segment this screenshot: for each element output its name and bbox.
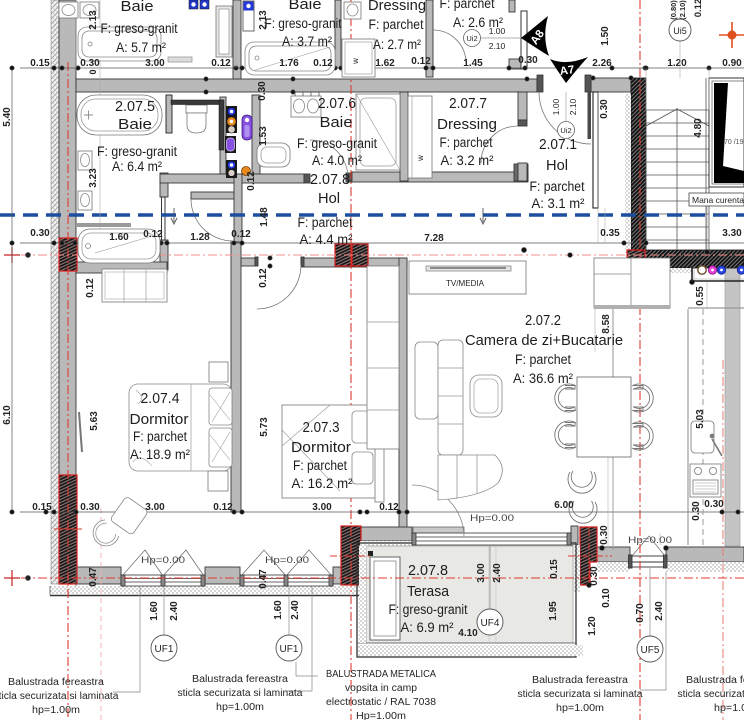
svg-text:2.07.6: 2.07.6 bbox=[318, 96, 356, 112]
svg-text:A: 4.4 m²: A: 4.4 m² bbox=[300, 232, 353, 247]
svg-text:0.55: 0.55 bbox=[695, 286, 706, 306]
svg-text:hp=1.00m: hp=1.00m bbox=[714, 703, 744, 714]
svg-text:F: parchet: F: parchet bbox=[440, 135, 493, 150]
svg-text:F: parchet: F: parchet bbox=[530, 179, 585, 194]
svg-text:1.00: 1.00 bbox=[551, 98, 561, 115]
svg-text:0.10: 0.10 bbox=[601, 588, 612, 608]
svg-text:1.60: 1.60 bbox=[109, 232, 129, 243]
svg-text:Dormitor: Dormitor bbox=[291, 440, 351, 456]
svg-text:2.07.2: 2.07.2 bbox=[525, 313, 561, 329]
svg-text:0.30: 0.30 bbox=[691, 501, 702, 521]
svg-text:F: greso-granit: F: greso-granit bbox=[297, 136, 377, 151]
svg-text:2.07.5: 2.07.5 bbox=[115, 99, 155, 115]
svg-text:2.07.8: 2.07.8 bbox=[310, 172, 350, 188]
svg-text:UF5: UF5 bbox=[641, 645, 660, 656]
svg-text:1.60: 1.60 bbox=[149, 601, 160, 621]
svg-text:2.10: 2.10 bbox=[568, 98, 578, 115]
svg-text:Baie: Baie bbox=[118, 117, 152, 133]
svg-text:sticla securizata si laminata: sticla securizata si laminata bbox=[0, 691, 119, 702]
svg-text:A: 3.1 m²: A: 3.1 m² bbox=[532, 196, 585, 211]
svg-text:0.12: 0.12 bbox=[143, 229, 163, 240]
svg-text:A: 4.0 m²: A: 4.0 m² bbox=[312, 153, 362, 168]
svg-text:Ui2: Ui2 bbox=[560, 126, 571, 135]
svg-text:F: parchet: F: parchet bbox=[369, 17, 424, 32]
svg-text:Hp=0.00: Hp=0.00 bbox=[265, 555, 309, 566]
svg-text:Baie: Baie bbox=[121, 0, 154, 15]
svg-text:w: w bbox=[351, 58, 360, 65]
svg-text:0.12: 0.12 bbox=[693, 0, 704, 17]
svg-text:0.30: 0.30 bbox=[704, 499, 724, 510]
svg-text:A: 2.6 m²: A: 2.6 m² bbox=[453, 15, 503, 30]
svg-text:sticla securizata si laminata: sticla securizata si laminata bbox=[178, 688, 303, 699]
svg-text:UF4: UF4 bbox=[481, 618, 500, 629]
svg-text:A: 16.2 m²: A: 16.2 m² bbox=[292, 476, 353, 491]
svg-text:3.00: 3.00 bbox=[312, 502, 332, 513]
svg-text:Ui5: Ui5 bbox=[673, 26, 687, 36]
svg-text:5.63: 5.63 bbox=[89, 411, 100, 431]
svg-text:A: 6.9 m²: A: 6.9 m² bbox=[401, 620, 454, 635]
svg-text:1.48: 1.48 bbox=[259, 207, 270, 227]
svg-text:3.00: 3.00 bbox=[476, 563, 487, 583]
svg-text:Dormitor: Dormitor bbox=[130, 412, 189, 428]
svg-text:0.35: 0.35 bbox=[600, 228, 620, 239]
svg-text:A7: A7 bbox=[559, 64, 575, 78]
svg-text:2.07.4: 2.07.4 bbox=[141, 391, 180, 407]
svg-text:0.47: 0.47 bbox=[88, 567, 99, 587]
svg-text:0.12: 0.12 bbox=[211, 58, 231, 69]
svg-text:UF1: UF1 bbox=[155, 644, 174, 655]
svg-text:6.10: 6.10 bbox=[2, 405, 13, 425]
svg-text:0.70: 0.70 bbox=[635, 603, 646, 623]
svg-text:2.07.8: 2.07.8 bbox=[408, 563, 448, 579]
svg-text:5.03: 5.03 bbox=[695, 409, 706, 429]
svg-text:0.90: 0.90 bbox=[722, 58, 742, 69]
svg-text:F: parchet: F: parchet bbox=[440, 0, 495, 11]
svg-text:(0.80): (0.80) bbox=[669, 0, 678, 20]
svg-text:1.50: 1.50 bbox=[600, 26, 611, 46]
svg-text:Hp=0.00: Hp=0.00 bbox=[628, 535, 672, 546]
svg-text:2.40: 2.40 bbox=[492, 563, 503, 583]
svg-text:0.12: 0.12 bbox=[313, 58, 333, 69]
svg-text:A: 6.4 m²: A: 6.4 m² bbox=[112, 159, 162, 174]
svg-text:Balustrada fereastra: Balustrada fereastra bbox=[532, 675, 628, 686]
svg-text:0.12: 0.12 bbox=[379, 502, 399, 513]
svg-text:0.12: 0.12 bbox=[411, 56, 431, 67]
svg-text:2.13: 2.13 bbox=[88, 10, 99, 30]
svg-text:A: 2.7 m²: A: 2.7 m² bbox=[373, 37, 421, 52]
svg-text:UF1: UF1 bbox=[280, 644, 299, 655]
svg-text:0.12: 0.12 bbox=[231, 229, 251, 240]
svg-text:1.45: 1.45 bbox=[463, 58, 483, 69]
svg-text:Baie: Baie bbox=[320, 115, 353, 131]
svg-text:Dressing: Dressing bbox=[437, 117, 497, 133]
svg-text:2.40: 2.40 bbox=[654, 601, 665, 621]
svg-text:TV/MEDIA: TV/MEDIA bbox=[446, 279, 485, 288]
svg-text:A: 3.2 m²: A: 3.2 m² bbox=[441, 153, 494, 168]
svg-text:0.30: 0.30 bbox=[589, 566, 600, 586]
svg-text:Ui2: Ui2 bbox=[466, 34, 477, 43]
svg-text:0.15: 0.15 bbox=[30, 58, 50, 69]
svg-text:sticla securizata si laminata: sticla securizata si laminata bbox=[678, 689, 744, 700]
svg-text:Hp=0.00: Hp=0.00 bbox=[141, 555, 185, 566]
svg-text:sticla securizata si laminata: sticla securizata si laminata bbox=[518, 689, 643, 700]
svg-text:1.60: 1.60 bbox=[273, 600, 284, 620]
svg-text:F: greso-granit: F: greso-granit bbox=[389, 602, 468, 617]
svg-text:0.12: 0.12 bbox=[258, 268, 269, 288]
svg-text:0.30: 0.30 bbox=[599, 99, 610, 119]
svg-text:vopsita in camp: vopsita in camp bbox=[345, 683, 417, 694]
svg-text:0.15: 0.15 bbox=[549, 559, 560, 579]
svg-text:F: greso-granit: F: greso-granit bbox=[101, 21, 178, 36]
svg-text:1.20: 1.20 bbox=[587, 616, 598, 636]
svg-text:A: 5.7 m²: A: 5.7 m² bbox=[116, 40, 166, 55]
svg-text:F: parchet: F: parchet bbox=[298, 215, 353, 230]
svg-text:8.58: 8.58 bbox=[601, 314, 612, 334]
svg-text:0.12: 0.12 bbox=[246, 171, 257, 191]
svg-text:F: parchet: F: parchet bbox=[515, 352, 571, 367]
svg-text:(2.10): (2.10) bbox=[678, 0, 687, 20]
svg-text:F: greso-granit: F: greso-granit bbox=[265, 16, 342, 31]
svg-text:electrostatic / RAL 7038: electrostatic / RAL 7038 bbox=[326, 697, 436, 708]
svg-text:Balustrada fereastra: Balustrada fereastra bbox=[192, 674, 288, 685]
svg-text:Camera de zi+Bucatarie: Camera de zi+Bucatarie bbox=[465, 333, 623, 349]
svg-text:5.73: 5.73 bbox=[259, 417, 270, 437]
svg-text:0.47: 0.47 bbox=[258, 569, 269, 589]
svg-text:2.40: 2.40 bbox=[169, 601, 180, 621]
svg-text:1.76: 1.76 bbox=[279, 58, 299, 69]
svg-text:2.10: 2.10 bbox=[489, 41, 506, 51]
svg-text:3.30: 3.30 bbox=[722, 228, 742, 239]
svg-text:5.40: 5.40 bbox=[2, 107, 13, 127]
svg-text:0.12: 0.12 bbox=[213, 502, 233, 513]
svg-text:0.30: 0.30 bbox=[518, 55, 538, 66]
svg-text:A: 36.6 m²: A: 36.6 m² bbox=[513, 371, 573, 386]
svg-text:Mana curenta: Mana curenta bbox=[692, 195, 744, 205]
svg-text:Balustrada fereastra: Balustrada fereastra bbox=[8, 677, 104, 688]
svg-text:3.00: 3.00 bbox=[145, 502, 165, 513]
svg-text:2.07.1: 2.07.1 bbox=[539, 137, 577, 153]
svg-text:0.15: 0.15 bbox=[32, 502, 52, 513]
svg-text:1.53: 1.53 bbox=[258, 126, 269, 146]
svg-text:F: greso-granit: F: greso-granit bbox=[97, 144, 177, 159]
svg-text:Hp=1.00m: Hp=1.00m bbox=[356, 711, 406, 720]
svg-text:3.23: 3.23 bbox=[88, 168, 99, 188]
svg-text:A: 18.9 m²: A: 18.9 m² bbox=[130, 447, 190, 462]
svg-text:2.07.7: 2.07.7 bbox=[449, 96, 487, 112]
svg-text:Balustrada fereastra: Balustrada fereastra bbox=[686, 675, 744, 686]
svg-text:hp=1.00m: hp=1.00m bbox=[556, 703, 604, 714]
svg-text:hp=1.00m: hp=1.00m bbox=[216, 702, 264, 713]
svg-text:Hp=0.00: Hp=0.00 bbox=[470, 513, 514, 524]
svg-text:1.95: 1.95 bbox=[548, 601, 559, 621]
svg-text:0.12: 0.12 bbox=[85, 278, 96, 298]
svg-text:Hol: Hol bbox=[318, 191, 340, 207]
svg-text:1.28: 1.28 bbox=[190, 232, 210, 243]
svg-text:Baie: Baie bbox=[289, 0, 322, 13]
svg-text:3.00: 3.00 bbox=[145, 58, 165, 69]
svg-text:7.28: 7.28 bbox=[424, 233, 444, 244]
svg-text:4.80: 4.80 bbox=[693, 118, 704, 138]
svg-text:2.40: 2.40 bbox=[290, 600, 301, 620]
svg-text:0.30: 0.30 bbox=[80, 58, 100, 69]
svg-text:6.00: 6.00 bbox=[554, 500, 574, 511]
svg-text:Dressing: Dressing bbox=[368, 0, 426, 14]
svg-text:0.30: 0.30 bbox=[257, 81, 268, 101]
svg-text:A: 3.7 m²: A: 3.7 m² bbox=[282, 34, 332, 49]
svg-text:hp=1.00m: hp=1.00m bbox=[32, 705, 80, 716]
svg-text:w: w bbox=[416, 155, 425, 162]
svg-text:2.26: 2.26 bbox=[592, 58, 612, 69]
svg-text:Hol: Hol bbox=[546, 158, 568, 174]
svg-text:F: parchet: F: parchet bbox=[293, 458, 347, 473]
svg-text:0.30: 0.30 bbox=[599, 525, 610, 545]
svg-text:Terasa: Terasa bbox=[407, 584, 450, 600]
svg-text:2.07.3: 2.07.3 bbox=[303, 420, 340, 436]
svg-text:0.30: 0.30 bbox=[80, 502, 100, 513]
svg-text:0.30: 0.30 bbox=[30, 228, 50, 239]
svg-text:70 /19: 70 /19 bbox=[724, 139, 744, 146]
svg-text:4.10: 4.10 bbox=[458, 628, 478, 639]
svg-text:1.20: 1.20 bbox=[667, 58, 687, 69]
svg-text:F: parchet: F: parchet bbox=[133, 429, 187, 444]
svg-text:0: 0 bbox=[88, 69, 98, 74]
svg-text:BALUSTRADA METALICA: BALUSTRADA METALICA bbox=[326, 669, 436, 680]
svg-text:1.62: 1.62 bbox=[375, 58, 395, 69]
